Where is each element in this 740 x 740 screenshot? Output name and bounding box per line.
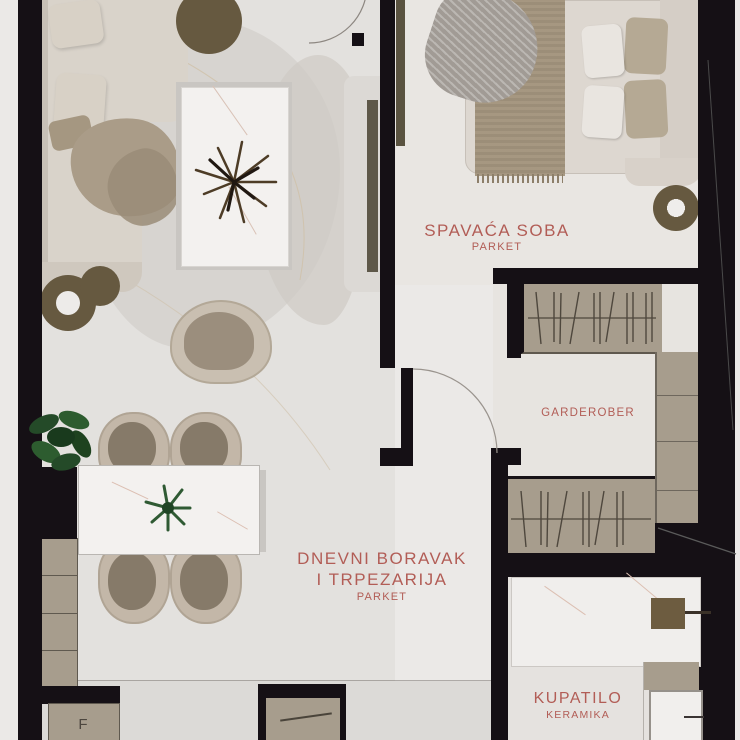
dining-chair-seat [180,552,228,610]
bathroom-door-handle [684,716,704,718]
wardrobe-label: GARDEROBER [518,406,658,420]
kitchen-island-sink [266,698,340,740]
bathroom-label: KUPATILO KERAMIKA [509,689,647,722]
bedroom-floor-type: PARKET [397,241,597,255]
living-name-line1: DNEVNI BORAVAK [272,548,492,569]
floor-plant [26,402,96,476]
bathroom-floor-type: KERAMIKA [509,709,647,722]
living-room-label: DNEVNI BORAVAK I TRPEZARIJA PARKET [272,548,492,604]
bathroom-name: KUPATILO [509,689,647,709]
shower-fixture [651,598,685,629]
living-floor-type: PARKET [272,591,492,605]
dining-chair-seat [108,552,156,610]
bedroom-name: SPAVAĆA SOBA [397,220,597,241]
wardrobe-name: GARDEROBER [518,406,658,420]
floor-plan: F SPAVAĆA SOBA PARKET DNEVNI BORAVAK I T… [0,0,740,740]
table-plant [138,478,198,538]
bathroom-door [649,690,703,740]
bedroom-label: SPAVAĆA SOBA PARKET [397,220,597,255]
bathroom-vanity [643,662,699,690]
living-name-line2: I TRPEZARIJA [272,569,492,590]
shower-fixture-arm [685,611,711,614]
fridge-label: F [48,716,118,733]
